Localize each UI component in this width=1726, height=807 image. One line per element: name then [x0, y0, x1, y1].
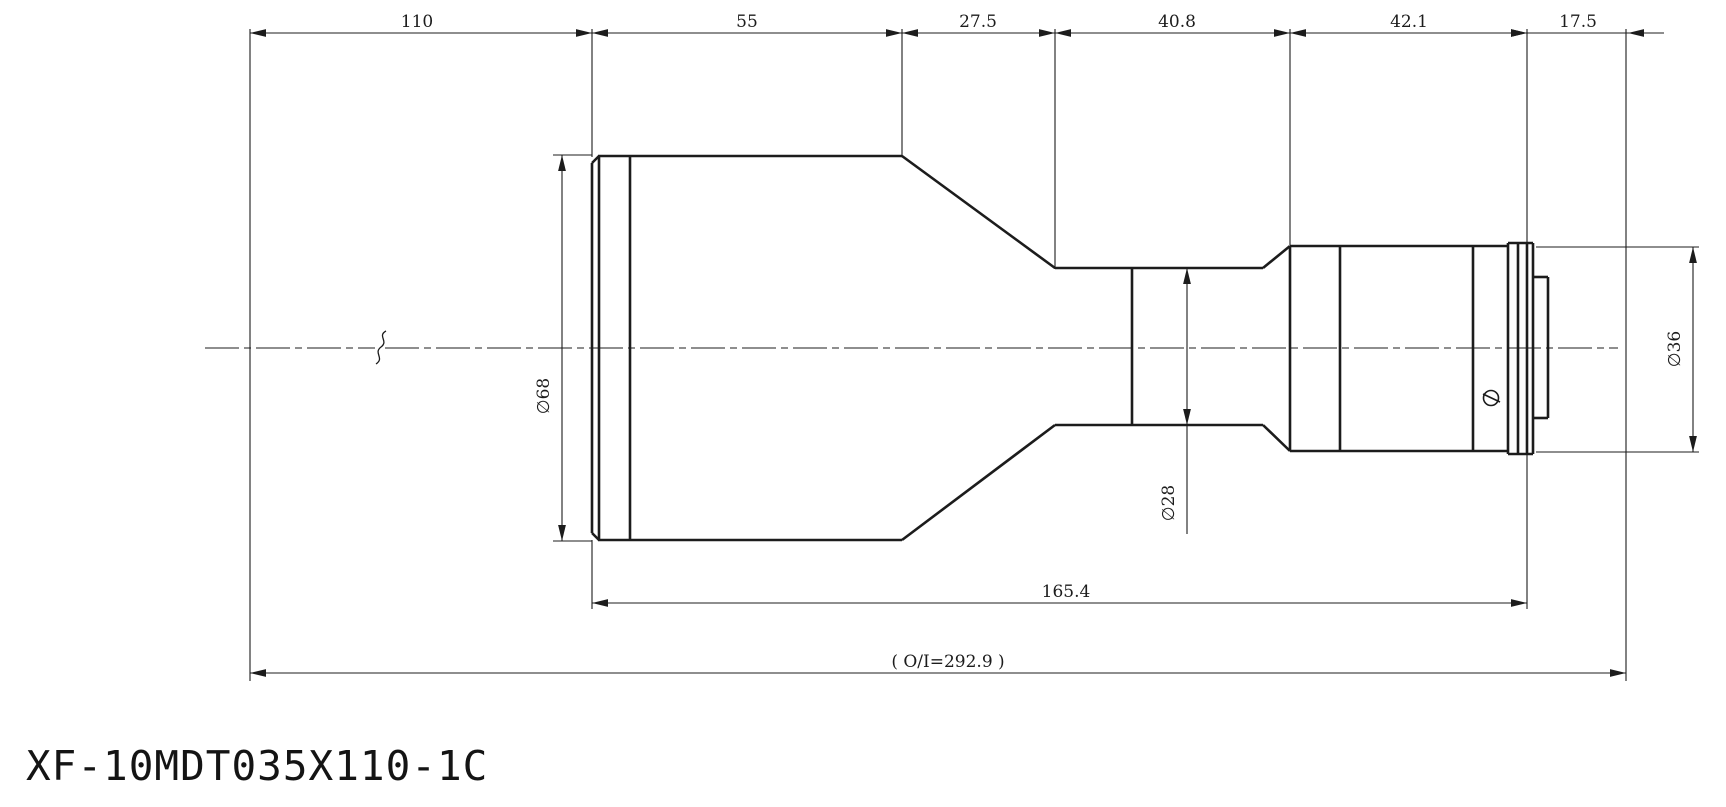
dimension-arrow-icon	[886, 29, 902, 37]
set-screw	[1483, 391, 1500, 406]
break-symbol	[376, 331, 386, 364]
dimension-label: 27.5	[959, 12, 997, 32]
dimension-arrow-icon	[1039, 29, 1055, 37]
dimension-label: ∅36	[1665, 331, 1685, 367]
dimension-label: 110	[401, 12, 433, 32]
drawing-svg: 1105527.540.842.117.5165.4( O/I=292.9 )∅…	[0, 0, 1726, 807]
dimension-arrow-icon	[1511, 599, 1527, 607]
dimension-label: 165.4	[1042, 582, 1091, 602]
dimension-arrow-icon	[1290, 29, 1306, 37]
drawing-page: 1105527.540.842.117.5165.4( O/I=292.9 )∅…	[0, 0, 1726, 807]
dimension-arrow-icon	[1689, 436, 1697, 452]
dimension-label: 40.8	[1158, 12, 1196, 32]
dimension-arrow-icon	[1183, 268, 1191, 284]
dimension-o-i: ( O/I=292.9 )	[250, 652, 1626, 677]
dimension-arrow-icon	[576, 29, 592, 37]
dimension-label: ∅28	[1159, 485, 1179, 521]
dimension-label: 42.1	[1390, 12, 1428, 32]
dimension-arrow-icon	[250, 29, 266, 37]
dimension-arrow-icon	[902, 29, 918, 37]
dimension-label: ∅68	[534, 378, 554, 414]
dimension-arrow-icon	[1689, 247, 1697, 263]
dimension-165-4: 165.4	[592, 582, 1527, 607]
dimension-40-8: 40.8	[1055, 12, 1290, 37]
dimension-arrow-icon	[592, 599, 608, 607]
dimension-110: 110	[250, 12, 592, 37]
part-number: XF-10MDT035X110-1C	[26, 742, 488, 790]
dimension-arrow-icon	[558, 155, 566, 171]
dimension-arrow-icon	[250, 669, 266, 677]
centerline	[205, 331, 1618, 364]
dimension-arrow-icon	[1183, 409, 1191, 425]
dimension-label: 17.5	[1559, 12, 1597, 32]
dimension-d28: ∅28	[1159, 268, 1191, 534]
dimension-17-5: 17.5	[1491, 12, 1664, 37]
dimension-label: 55	[736, 12, 758, 32]
dimension-arrow-icon	[592, 29, 608, 37]
dimension-label: ( O/I=292.9 )	[891, 652, 1004, 672]
dimension-55: 55	[592, 12, 902, 37]
dimension-arrow-icon	[1610, 669, 1626, 677]
dimension-arrow-icon	[1055, 29, 1071, 37]
extension-lines	[250, 29, 1699, 681]
dimension-27-5: 27.5	[902, 12, 1055, 37]
dimension-arrow-icon	[558, 525, 566, 541]
dimension-arrow-icon	[1274, 29, 1290, 37]
dimension-d36: ∅36	[1665, 247, 1697, 452]
